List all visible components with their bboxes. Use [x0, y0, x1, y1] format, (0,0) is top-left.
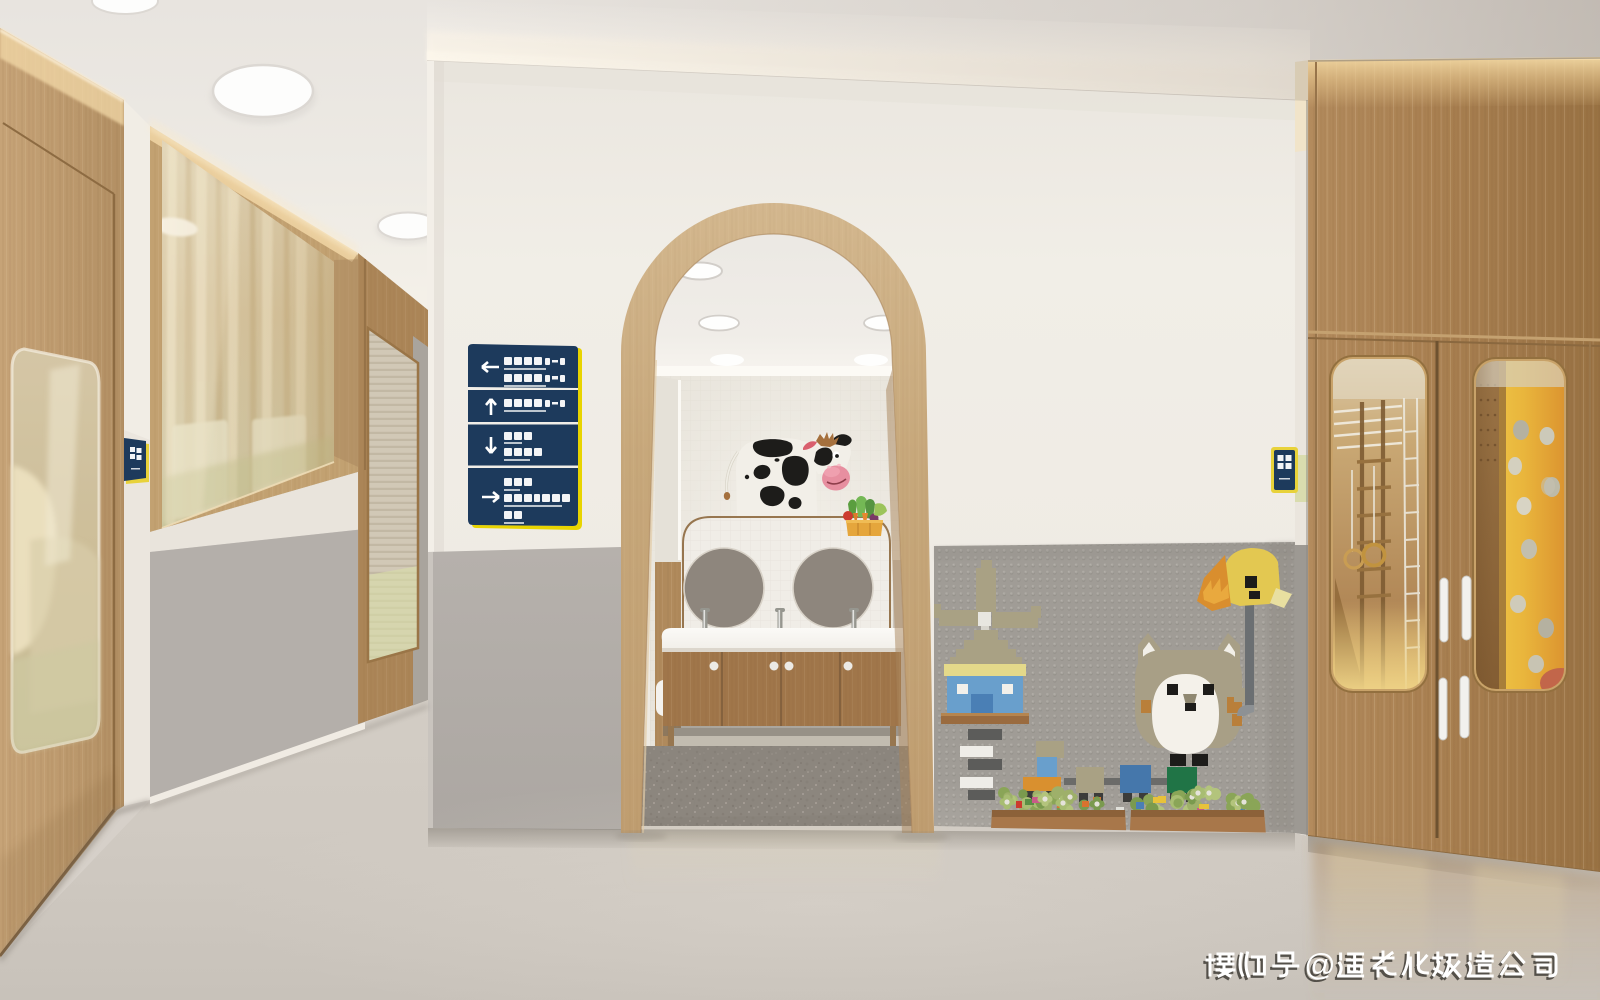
svg-text:@: @ [1304, 947, 1335, 982]
